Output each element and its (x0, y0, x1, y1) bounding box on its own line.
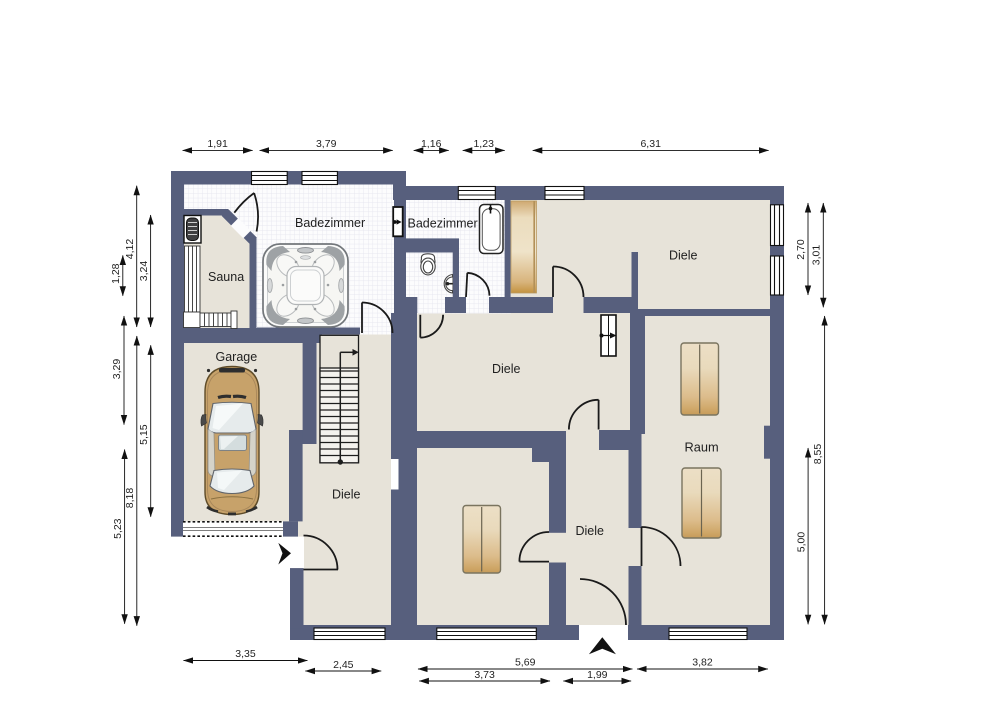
svg-text:Diele: Diele (332, 488, 361, 502)
svg-text:1,91: 1,91 (207, 138, 228, 150)
svg-text:1,23: 1,23 (473, 138, 494, 150)
svg-text:Sauna: Sauna (208, 270, 244, 284)
svg-text:5,00: 5,00 (795, 532, 807, 553)
svg-text:5,15: 5,15 (138, 424, 150, 445)
svg-text:5,69: 5,69 (515, 657, 536, 669)
svg-text:1,28: 1,28 (110, 263, 122, 284)
svg-text:Diele: Diele (669, 249, 698, 263)
svg-text:3,01: 3,01 (811, 245, 823, 266)
svg-text:3,24: 3,24 (138, 261, 150, 282)
svg-text:1,16: 1,16 (421, 138, 442, 150)
svg-text:8,55: 8,55 (812, 444, 824, 465)
svg-text:1,99: 1,99 (587, 669, 608, 681)
svg-text:8,18: 8,18 (124, 488, 136, 509)
svg-text:3,29: 3,29 (111, 359, 123, 380)
svg-text:Diele: Diele (576, 524, 605, 538)
svg-text:5,23: 5,23 (112, 518, 124, 539)
svg-text:3,82: 3,82 (692, 657, 713, 669)
svg-text:Badezimmer: Badezimmer (295, 216, 365, 230)
svg-text:Garage: Garage (216, 350, 258, 364)
svg-text:2,45: 2,45 (333, 659, 354, 671)
svg-text:Raum: Raum (685, 440, 719, 455)
svg-text:3,79: 3,79 (316, 138, 337, 150)
svg-text:Badezimmer: Badezimmer (408, 217, 478, 231)
svg-text:6,31: 6,31 (640, 138, 661, 150)
svg-text:3,73: 3,73 (474, 669, 495, 681)
svg-text:4,12: 4,12 (124, 239, 136, 260)
svg-text:2,70: 2,70 (795, 239, 807, 260)
svg-text:Diele: Diele (492, 362, 521, 376)
svg-text:3,35: 3,35 (235, 648, 256, 660)
